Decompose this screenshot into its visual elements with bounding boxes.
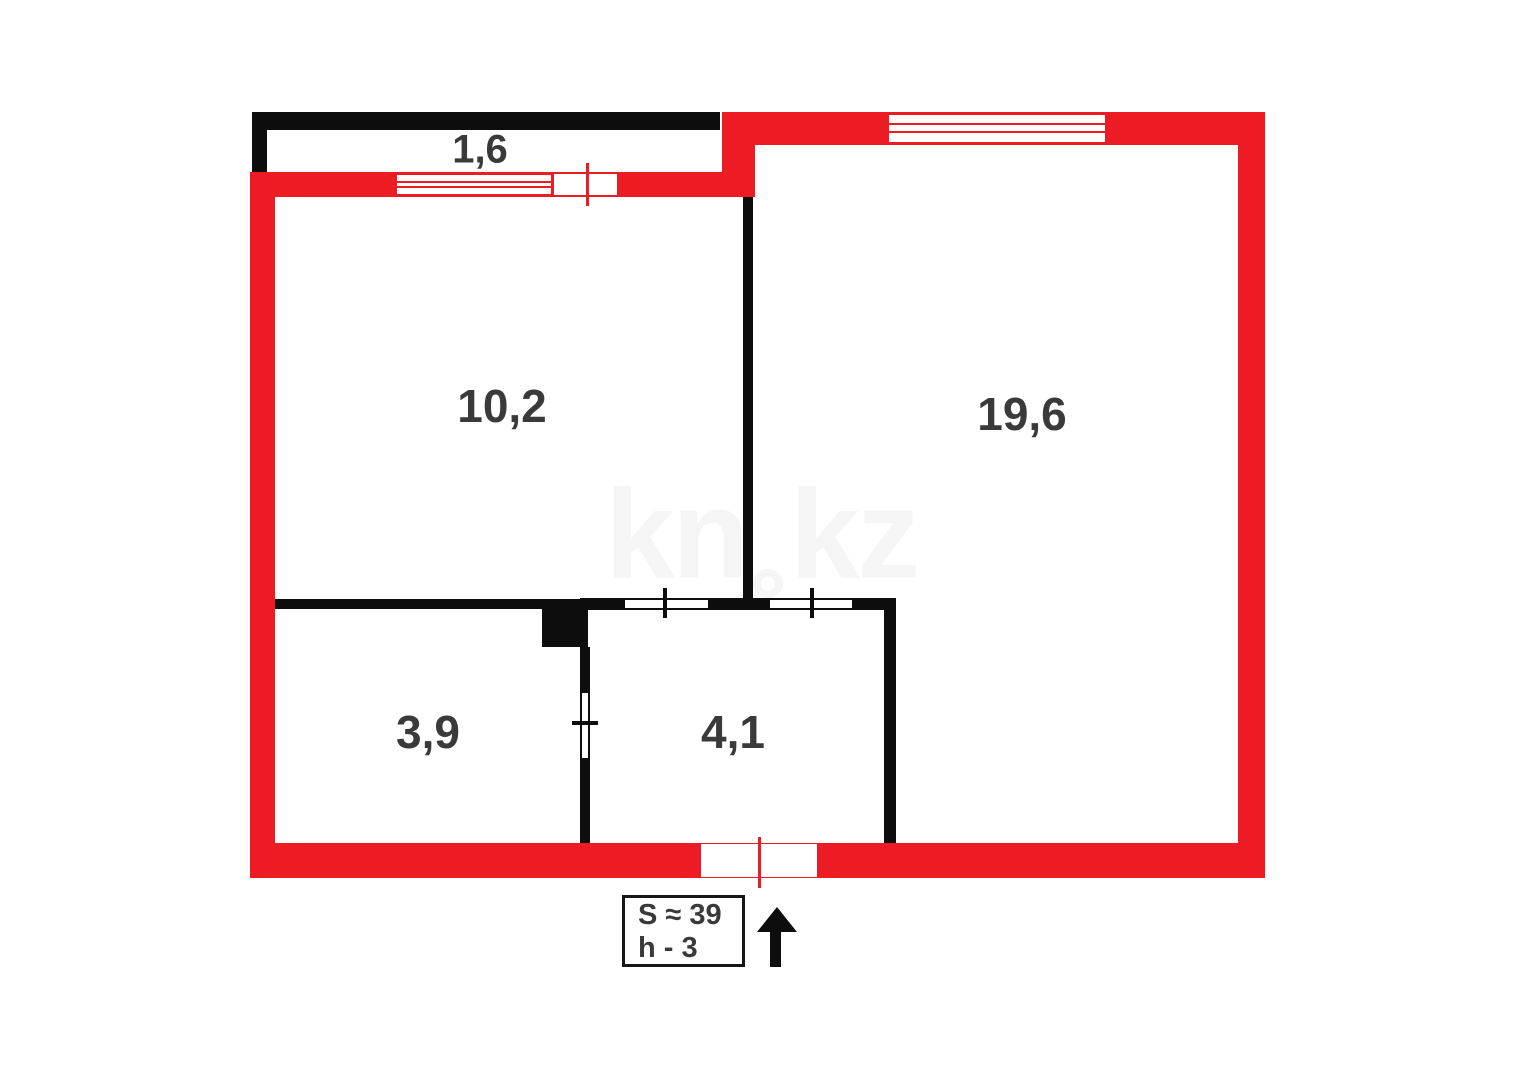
info-box: S ≈ 39 h - 3 (622, 895, 745, 967)
watermark-part1: kn (605, 462, 746, 607)
info-ceiling-height: h - 3 (638, 932, 742, 965)
entrance-arrow-icon (757, 907, 797, 932)
room-label-balcony: 1,6 (452, 128, 508, 173)
door-balcony-tick (586, 163, 589, 206)
door-bathroom-opening (582, 693, 588, 758)
wall-interior-above-bathroom (275, 599, 545, 609)
room-label-room-top-left: 10,2 (457, 379, 547, 433)
watermark: kn kz (605, 462, 917, 607)
door-bathroom-tick (572, 721, 598, 725)
info-total-area: S ≈ 39 (638, 899, 742, 932)
wall-balcony-left (252, 112, 267, 172)
watermark-dot-icon (753, 569, 783, 599)
door-hallway-right-tick (810, 588, 814, 618)
entrance-arrow-stem (770, 930, 781, 967)
window-living-room (887, 113, 1107, 144)
wall-interior-vertical-main (743, 197, 753, 610)
door-entrance-tick (758, 837, 761, 888)
wall-interior-hallway-right (884, 598, 896, 843)
room-label-room-bottom-left: 3,9 (396, 705, 460, 759)
window-balcony (395, 173, 553, 196)
wall-exterior-right (1238, 112, 1265, 878)
floor-plan: kn kz 1,6 10,2 19,6 3,9 4,1 S ≈ 39 h - 3 (0, 0, 1516, 1080)
room-label-hallway: 4,1 (701, 705, 765, 759)
door-hallway-left-tick (663, 588, 667, 618)
room-label-room-right: 19,6 (977, 387, 1067, 441)
watermark-part2: kz (790, 462, 917, 607)
wall-exterior-left (250, 172, 275, 878)
